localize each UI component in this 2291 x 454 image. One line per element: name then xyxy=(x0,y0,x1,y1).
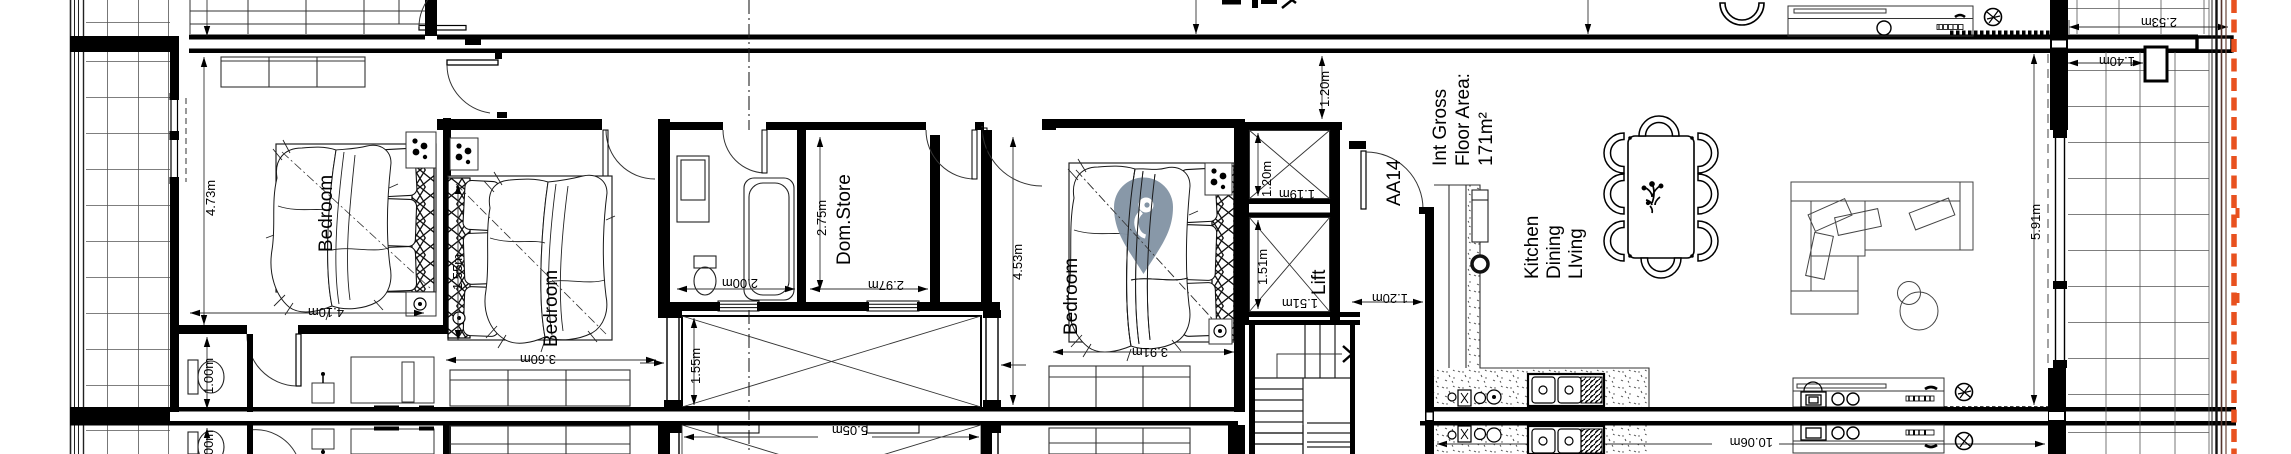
svg-text:Lift: Lift xyxy=(1309,269,1330,295)
svg-text:1.51m: 1.51m xyxy=(1282,296,1318,311)
svg-text:1.51m: 1.51m xyxy=(1255,249,1270,285)
svg-text:2.97m: 2.97m xyxy=(868,278,904,293)
svg-text:1.55m: 1.55m xyxy=(450,254,465,290)
svg-text:4.53m: 4.53m xyxy=(1010,244,1025,280)
svg-text:5.91m: 5.91m xyxy=(2028,204,2043,240)
svg-text:2.53m: 2.53m xyxy=(2141,15,2177,30)
svg-text:171m²: 171m² xyxy=(1476,112,1497,166)
svg-text:Floor Area:: Floor Area: xyxy=(1453,73,1474,166)
svg-text:Kitchen: Kitchen xyxy=(1522,216,1543,279)
svg-text:10.06m: 10.06m xyxy=(1730,435,1773,450)
svg-text:Bedroom: Bedroom xyxy=(1061,258,1082,335)
svg-text:1.40m: 1.40m xyxy=(2099,54,2135,69)
svg-text:1.20m: 1.20m xyxy=(1317,71,1332,107)
svg-text:Int Gross: Int Gross xyxy=(1430,89,1451,166)
svg-text:1.20m: 1.20m xyxy=(1259,161,1274,197)
svg-text:1.20m: 1.20m xyxy=(1372,291,1408,306)
svg-text:LIving: LIving xyxy=(1566,228,1587,279)
svg-text:4.10m: 4.10m xyxy=(308,305,344,320)
svg-text:AA14: AA14 xyxy=(1384,159,1405,206)
svg-text:Dining: Dining xyxy=(1544,225,1565,279)
svg-text:Bedroom: Bedroom xyxy=(316,175,337,252)
svg-text:1.55m: 1.55m xyxy=(688,348,703,384)
svg-text:4.73m: 4.73m xyxy=(203,180,218,216)
svg-text:1.19m: 1.19m xyxy=(1279,187,1315,202)
svg-text:3.91m: 3.91m xyxy=(1132,345,1168,360)
svg-text:1.00m: 1.00m xyxy=(201,358,216,394)
svg-text:5.05m: 5.05m xyxy=(832,423,868,438)
svg-text:3.60m: 3.60m xyxy=(520,352,556,367)
svg-text:1.00m: 1.00m xyxy=(201,430,216,454)
svg-text:Dom.Store: Dom.Store xyxy=(834,174,855,265)
svg-text:Bedroom: Bedroom xyxy=(541,270,562,347)
svg-text:2.00m: 2.00m xyxy=(722,276,758,291)
svg-text:2.75m: 2.75m xyxy=(814,200,829,236)
